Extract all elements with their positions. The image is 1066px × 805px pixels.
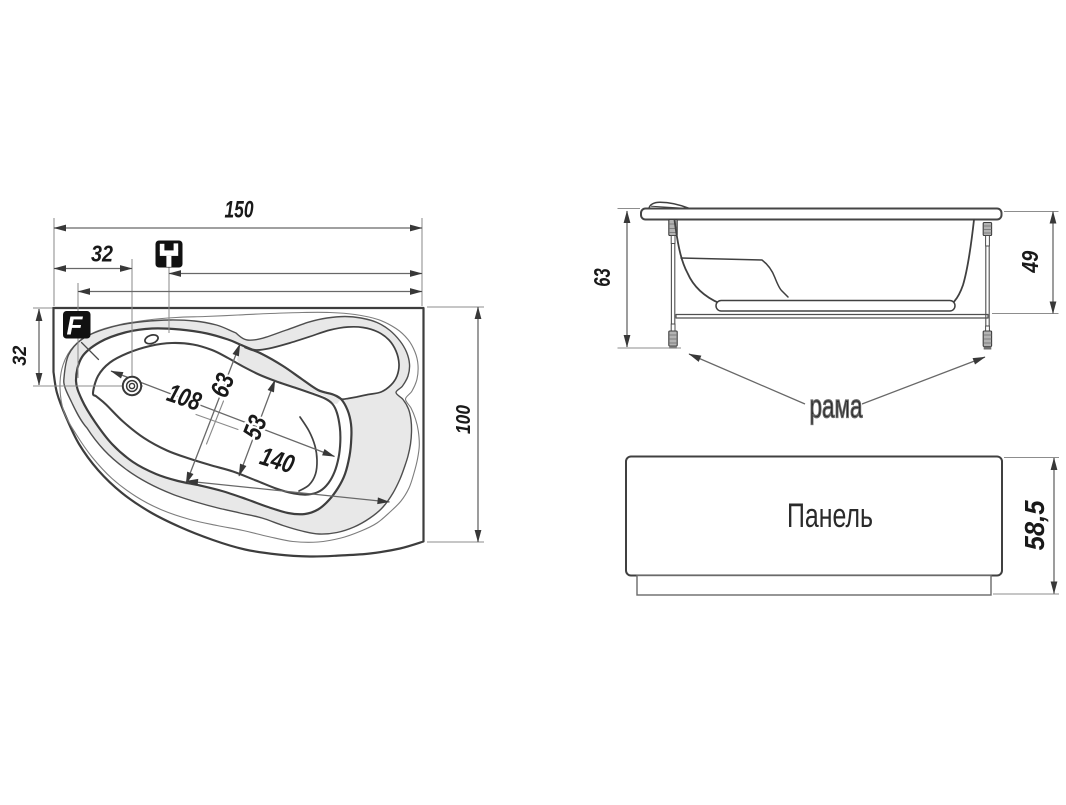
svg-text:Панель: Панель: [787, 497, 873, 535]
svg-text:100: 100: [453, 405, 475, 434]
svg-text:32: 32: [10, 345, 31, 365]
svg-text:150: 150: [225, 197, 254, 224]
svg-text:F: F: [67, 311, 84, 341]
svg-text:63: 63: [589, 268, 615, 287]
svg-text:49: 49: [1017, 251, 1043, 274]
svg-text:32: 32: [91, 241, 113, 267]
svg-text:58,5: 58,5: [1019, 500, 1050, 550]
svg-text:рама: рама: [810, 388, 863, 425]
